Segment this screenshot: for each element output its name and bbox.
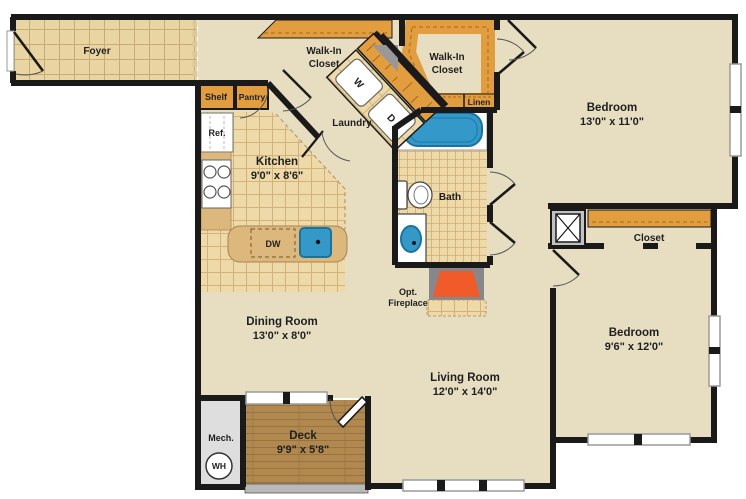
fixture-label-pantry: Pantry	[239, 92, 266, 102]
room-label-wic1-line1: Walk-In	[306, 46, 341, 57]
fixture-label-dw: DW	[266, 239, 281, 249]
room-label-bedroom2: Bedroom	[609, 327, 659, 339]
room-label-mech: Mech.	[208, 433, 234, 443]
room-dims-kitchen: 9'0" x 8'6"	[251, 170, 303, 182]
room-label-wic2-line1: Walk-In	[429, 52, 464, 63]
toilet-tank	[397, 181, 407, 209]
fixture-label-linen: Linen	[468, 97, 491, 107]
room-dims-bedroom2: 9'6" x 12'0"	[605, 341, 663, 353]
room-label-dining: Dining Room	[246, 316, 318, 328]
floor-plan-drawing: W D	[0, 0, 746, 499]
fixture-label-shelf: Shelf	[205, 92, 228, 102]
room-dims-dining: 13'0" x 8'0"	[253, 330, 311, 342]
room-label-foyer: Foyer	[83, 46, 110, 57]
room-dims-deck: 9'9" x 5'8"	[277, 444, 329, 456]
firebox	[433, 271, 480, 297]
room-label-laundry: Laundry	[332, 118, 372, 129]
water-heater-label: WH	[212, 461, 226, 471]
fireplace-label-line1: Opt.	[399, 287, 417, 297]
room-label-deck: Deck	[289, 430, 317, 442]
room-label-closet: Closet	[634, 233, 665, 244]
bedroom-closet-shelf	[588, 210, 711, 227]
room-label-kitchen: Kitchen	[256, 156, 298, 168]
kitchen-sink	[300, 228, 331, 257]
deck-railing	[245, 484, 368, 493]
room-label-wic1-line2: Closet	[309, 59, 340, 70]
fireplace	[427, 266, 486, 316]
room-label-bedroom1: Bedroom	[587, 102, 637, 114]
room-dims-bedroom1: 13'0" x 11'0"	[580, 116, 644, 128]
room-label-wic2-line2: Closet	[432, 65, 463, 76]
room-dims-living: 12'0" x 14'0"	[433, 386, 498, 398]
room-label-bath: Bath	[439, 192, 461, 203]
fixture-label-ref: Ref.	[208, 128, 225, 138]
hvac-chase	[551, 210, 585, 246]
window-living	[403, 480, 524, 491]
entry-door-jamb	[7, 31, 14, 71]
bath-sink	[401, 226, 421, 252]
fireplace-label-line2: Fireplace	[388, 298, 428, 308]
floor-plan: W D	[0, 0, 746, 499]
hearth	[427, 300, 486, 316]
room-label-living: Living Room	[430, 372, 500, 384]
